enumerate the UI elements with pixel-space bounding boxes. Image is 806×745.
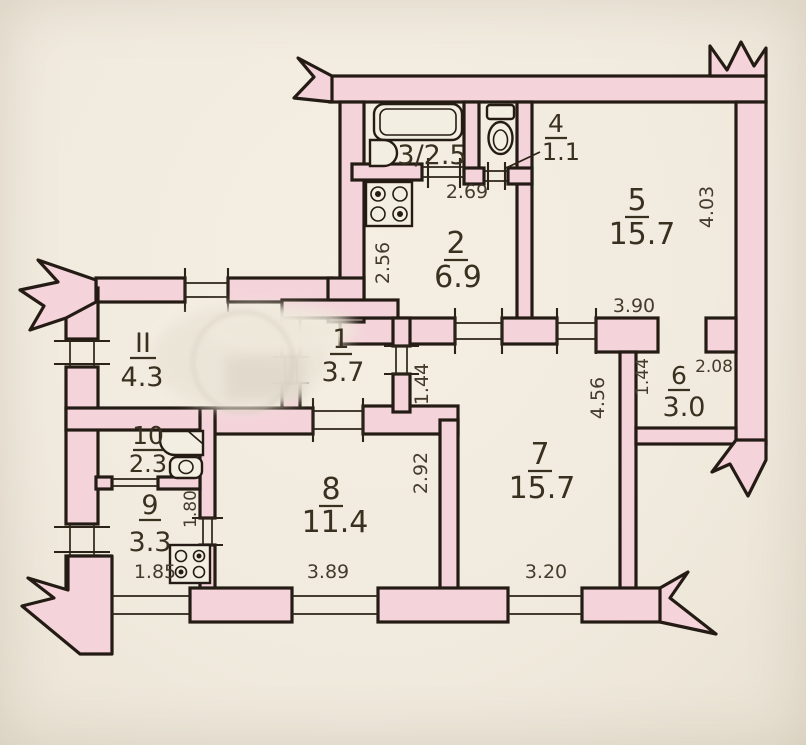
room8-number: 8: [321, 472, 340, 507]
dim-1-80: 1.80: [181, 490, 201, 528]
room9-area: 3.3: [129, 527, 172, 558]
floor-plan: 3/2.5 4 1.1 2 6.9 5 15.7 1 3.7 II 4.3 6 …: [0, 0, 806, 745]
window-bottom-room9: [112, 596, 190, 614]
room9-number: 9: [141, 490, 158, 521]
bathtub-icon: [374, 104, 462, 140]
room-bath3-label: 3/2.5: [397, 140, 466, 171]
window-bottom-room8: [292, 596, 378, 614]
wall-bottom-j: [582, 588, 662, 622]
dim-1-44-room1: 1.44: [411, 363, 433, 405]
stove-icon-kitchen2: [366, 182, 412, 226]
dim-2-56: 2.56: [372, 242, 394, 284]
window-bottom-room7: [508, 596, 582, 614]
room4-number: 4: [548, 109, 564, 138]
wall-left-b: [66, 367, 98, 524]
dim-1-44-room6: 1.44: [633, 358, 653, 396]
room2-area: 6.9: [434, 260, 482, 295]
door-room1-room8: [313, 398, 363, 442]
dim-4-56: 4.56: [587, 377, 609, 419]
dim-3-89: 3.89: [307, 561, 349, 583]
door-room5: [557, 308, 596, 354]
wall-right: [736, 102, 766, 444]
room4-area: 1.1: [542, 138, 580, 166]
room5-area: 15.7: [609, 217, 676, 252]
room6-number: 6: [671, 361, 687, 390]
wall-left-top-a: [96, 278, 185, 302]
door-room10-room9: [112, 479, 158, 486]
break-bottom-right: [660, 572, 716, 634]
dim-3-20: 3.20: [525, 561, 567, 583]
room10-area: 2.3: [129, 450, 167, 478]
room8-area: 11.4: [302, 505, 369, 540]
wall-band-b: [502, 318, 557, 344]
wall-wc-bottom-right: [508, 168, 532, 184]
room5-number: 5: [627, 183, 646, 218]
toilet-icon: [487, 105, 514, 154]
window-left-upper: [54, 339, 110, 367]
wall-left-top-b: [228, 278, 332, 302]
sink-icon: [370, 140, 397, 166]
wall-room8-top-left: [215, 408, 313, 434]
break-bottom-left-block: [22, 556, 112, 654]
room7-number: 7: [530, 437, 549, 472]
break-top-left: [294, 58, 332, 102]
wall-room1-right-upper: [393, 318, 410, 346]
wall-bottom-h: [190, 588, 292, 622]
sink-icon-room10: [170, 457, 202, 478]
wall-room6-bottom: [636, 428, 736, 444]
wall-top: [330, 76, 766, 102]
break-right-bottom: [712, 440, 766, 496]
roomII-area: 4.3: [121, 362, 164, 393]
wall-kitchen-room5: [517, 102, 532, 322]
dim-2-08: 2.08: [695, 357, 733, 377]
break-top-right: [710, 42, 766, 76]
window-left-lower: [54, 524, 110, 556]
door-entrance: [185, 268, 228, 312]
dim-1-85: 1.85: [134, 561, 176, 583]
room7-area: 15.7: [509, 471, 576, 506]
wall-band-c: [596, 318, 658, 352]
roomII-number: II: [135, 328, 151, 359]
wall-bottom-i: [378, 588, 508, 622]
floor-plan-photo: 3/2.5 4 1.1 2 6.9 5 15.7 1 3.7 II 4.3 6 …: [0, 0, 806, 745]
room1-number: 1: [332, 324, 349, 355]
wall-rooms109-div-left: [96, 477, 112, 489]
dim-2-92: 2.92: [410, 452, 432, 494]
room2-number: 2: [446, 226, 465, 261]
dim-4-03: 4.03: [696, 186, 718, 228]
dim-2-69: 2.69: [446, 181, 488, 203]
room10-number: 10: [132, 421, 164, 450]
room1-area: 3.7: [322, 357, 365, 388]
room6-area: 3.0: [663, 392, 706, 423]
wall-right-notch: [706, 318, 736, 352]
wall-room1-right-lower: [393, 374, 410, 412]
dim-3-90: 3.90: [613, 295, 655, 317]
wall-rooms87: [440, 420, 458, 592]
door-kitchen2: [455, 308, 502, 354]
